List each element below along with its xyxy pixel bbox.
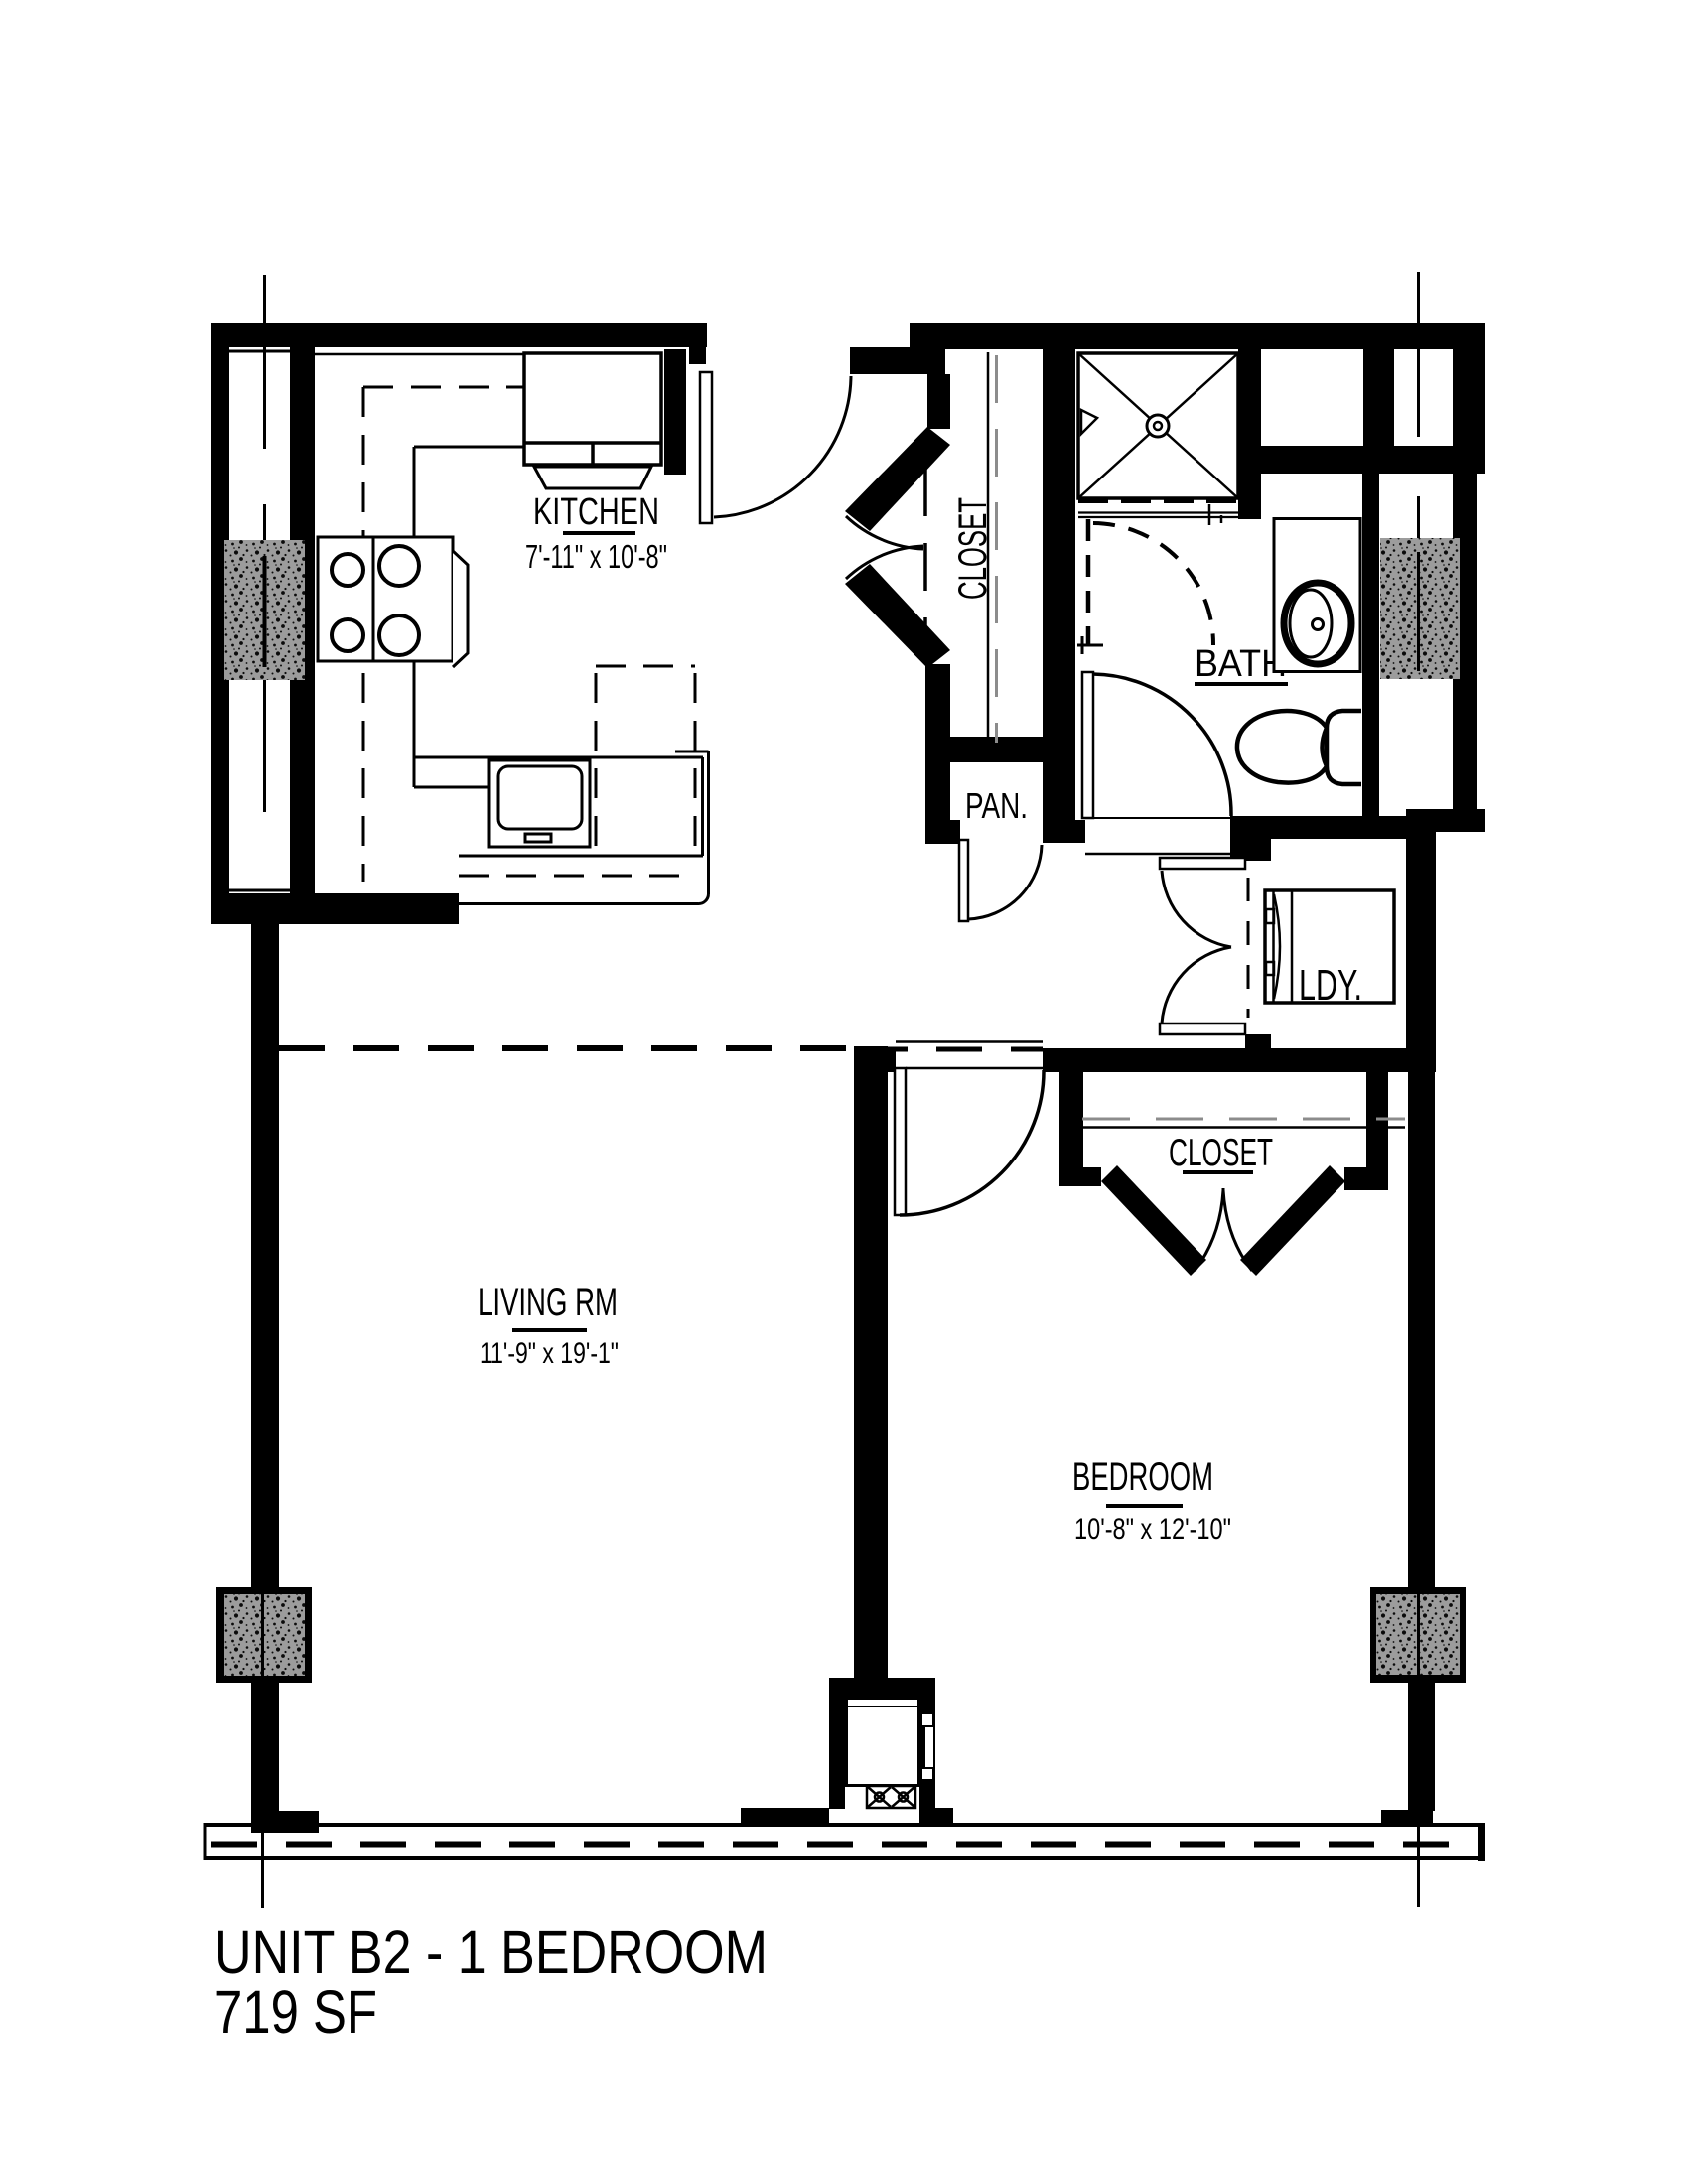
svg-text:CLOSET: CLOSET bbox=[1169, 1132, 1273, 1174]
svg-text:10'-8" x 12'-10": 10'-8" x 12'-10" bbox=[1074, 1513, 1231, 1546]
svg-text:11'-9" x 19'-1": 11'-9" x 19'-1" bbox=[480, 1337, 619, 1370]
svg-text:719 SF: 719 SF bbox=[214, 1979, 377, 2046]
svg-text:UNIT B2 - 1 BEDROOM: UNIT B2 - 1 BEDROOM bbox=[214, 1918, 768, 1985]
svg-text:KITCHEN: KITCHEN bbox=[533, 491, 659, 533]
svg-text:PAN.: PAN. bbox=[965, 785, 1028, 826]
svg-text:LIVING RM: LIVING RM bbox=[478, 1281, 618, 1324]
svg-text:BEDROOM: BEDROOM bbox=[1072, 1455, 1213, 1499]
svg-text:CLOSET: CLOSET bbox=[951, 497, 995, 600]
svg-text:7'-11" x 10'-8": 7'-11" x 10'-8" bbox=[525, 538, 667, 575]
svg-text:LDY.: LDY. bbox=[1299, 961, 1362, 1010]
